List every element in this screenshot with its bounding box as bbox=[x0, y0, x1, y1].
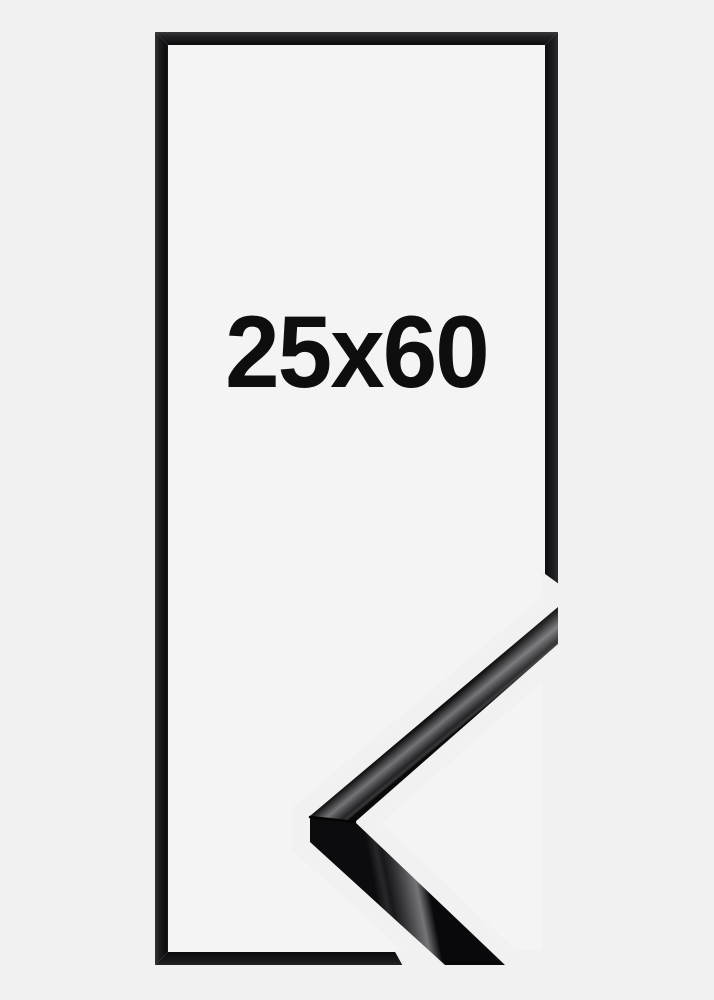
product-photo: 25x60 bbox=[0, 0, 714, 1000]
size-label: 25x60 bbox=[163, 301, 550, 403]
frame-product-graphic bbox=[0, 0, 714, 1000]
frame-left-bar bbox=[155, 32, 168, 965]
frame-top-bar bbox=[155, 32, 558, 45]
